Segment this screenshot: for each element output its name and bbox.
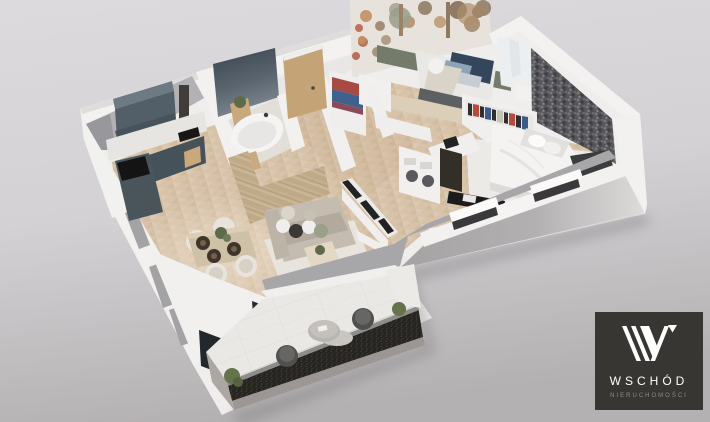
svg-text:NIERUCHOMOŚCI: NIERUCHOMOŚCI	[610, 391, 688, 399]
svg-text:WSCHÓD: WSCHÓD	[610, 373, 689, 388]
